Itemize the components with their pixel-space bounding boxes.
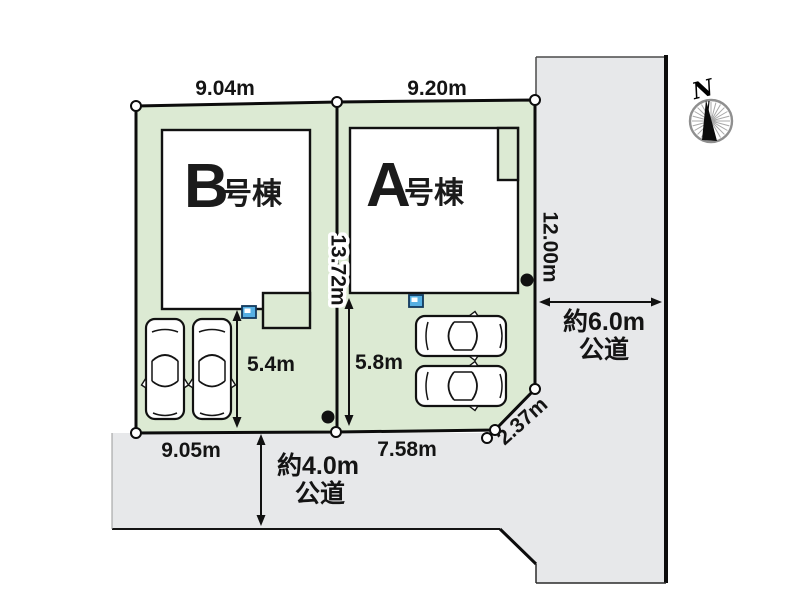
dim-a-frontage: 9.20m	[407, 77, 467, 100]
dim-center-boundary: 13.72m	[326, 234, 349, 305]
east-road-width-label: 約6.0m	[563, 307, 645, 336]
south-road-type-label: 公道	[295, 479, 345, 508]
south-road-width-label: 約4.0m	[277, 451, 359, 480]
building-a-notch	[498, 128, 518, 180]
dim-b-frontage: 9.04m	[195, 77, 255, 100]
east-road-type-label: 公道	[579, 335, 629, 364]
building-a: A 号棟	[350, 128, 518, 293]
dim-a-south: 7.58m	[377, 438, 437, 461]
compass: N	[688, 74, 732, 142]
survey-point	[131, 428, 141, 438]
boundary-marker-dot	[521, 274, 534, 287]
survey-point	[332, 97, 342, 107]
car	[189, 319, 236, 419]
survey-point	[131, 101, 141, 111]
car	[416, 362, 506, 411]
survey-point	[530, 95, 540, 105]
dim-east-boundary: 12.00m	[538, 211, 561, 282]
building-a-suffix: 号棟	[404, 177, 465, 210]
car	[416, 312, 506, 361]
building-b: B 号棟	[162, 130, 310, 328]
dim-b-parking: 5.4m	[247, 353, 295, 376]
north-label: N	[688, 74, 717, 106]
survey-point	[482, 433, 492, 443]
survey-point	[530, 384, 540, 394]
water-meter-icon	[242, 306, 256, 318]
dim-b-south: 9.05m	[161, 439, 221, 462]
dim-a-parking: 5.8m	[355, 351, 403, 374]
building-b-suffix: 号棟	[222, 178, 283, 211]
water-meter-icon	[409, 295, 423, 307]
car	[142, 319, 189, 419]
boundary-marker-dot	[322, 411, 335, 424]
site-plan-svg: B 号棟 A 号棟	[0, 0, 800, 600]
building-b-notch	[263, 293, 310, 328]
survey-point	[331, 427, 341, 437]
